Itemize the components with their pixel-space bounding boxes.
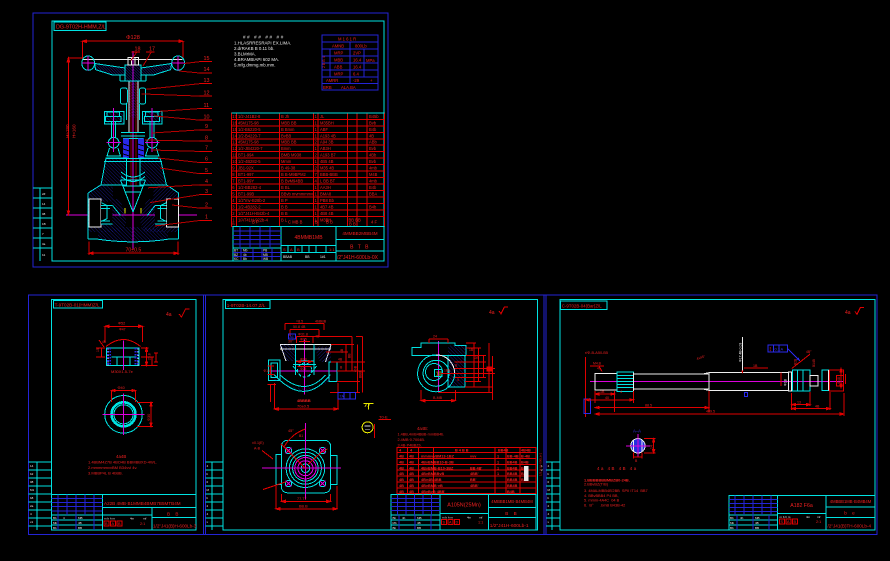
svg-text:B T B: B T B (350, 245, 370, 251)
svg-text:4MMBB2MBB4M: 4MMBB2MBB4M (342, 231, 377, 236)
svg-text:1B: 1B (469, 348, 474, 352)
svg-text:1:1: 1:1 (478, 521, 483, 525)
svg-text:1:1: 1:1 (329, 247, 335, 252)
svg-text:4B: 4B (755, 521, 759, 525)
svg-text:Φ40: Φ40 (118, 386, 125, 390)
svg-text:ABB: ABB (334, 65, 343, 70)
svg-text:4a: 4a (166, 312, 172, 318)
svg-text:1/2"J41(B)H-600Lb-3: 1/2"J41(B)H-600Lb-3 (153, 524, 197, 529)
svg-text:2: 2 (205, 202, 208, 208)
svg-text:2:1: 2:1 (816, 520, 821, 524)
svg-text:╏: ╏ (769, 347, 771, 352)
svg-text:B: B (315, 220, 318, 225)
svg-text:A1: A1 (290, 335, 294, 339)
svg-text:WB: WB (263, 257, 268, 261)
svg-text:4BBBB: 4BBBB (297, 398, 311, 403)
svg-text:mf: mf (143, 517, 146, 521)
svg-text:4: 4 (205, 179, 208, 185)
svg-text:b2: b2 (30, 472, 34, 476)
svg-text:3.BLMrMA.: 3.BLMrMA. (234, 52, 256, 57)
svg-text:A–A: A–A (633, 429, 641, 434)
svg-text:Mb: Mb (53, 521, 57, 525)
svg-text:r/Φ-B-A50-B5: r/Φ-B-A50-B5 (585, 351, 608, 355)
svg-text:4a 4B 4B 4a: 4a 4B 4B 4a (597, 466, 638, 471)
svg-text:4B°: 4B° (806, 350, 812, 354)
svg-text:M30X1.5-7e: M30X1.5-7e (111, 369, 134, 374)
svg-text:4m: 4m (467, 516, 472, 520)
svg-text:A22B 4MB·B1MMB4BMB7B5MTB4M: A22B 4MB·B1MMB4BMB7B5MTB4M (104, 501, 181, 506)
svg-text:77.77: 77.77 (297, 497, 307, 501)
svg-text:Φ31.8: Φ31.8 (298, 332, 308, 336)
svg-text:6: 6 (205, 157, 208, 163)
svg-text:800Lb: 800Lb (355, 44, 367, 49)
svg-text:mf: mf (817, 515, 820, 519)
svg-text:KC: KC (234, 257, 239, 261)
svg-text:4h: 4h (740, 516, 744, 520)
svg-text:14: 14 (204, 67, 210, 73)
svg-text:C-9T02B-04(Bar)Z/L: C-9T02B-04(Bar)Z/L (562, 304, 603, 309)
svg-text:Φ1B: Φ1B (784, 378, 788, 386)
svg-text:AMRR: AMRR (326, 78, 338, 83)
svg-text:Φ30: Φ30 (147, 414, 151, 421)
svg-text:H≈160: H≈160 (72, 124, 77, 138)
svg-text:1.4BBM4Z7B 4BO4B BBMBBXD-4WL.: 1.4BBM4Z7B 4BO4B BBMBBXD-4WL. (88, 460, 157, 465)
svg-text:30°: 30° (288, 339, 294, 343)
svg-text:T-9T02B-01(HMM)Z/L: T-9T02B-01(HMM)Z/L (55, 303, 100, 308)
svg-text:4a4B:: 4a4B: (417, 426, 428, 431)
svg-text:4: 4 (457, 378, 459, 382)
svg-text:Φ47: Φ47 (119, 327, 126, 331)
svg-text:Φ48: Φ48 (837, 377, 841, 384)
svg-text:2.BBvBZ(T/B): 2.BBvBZ(T/B) (584, 482, 609, 487)
svg-text:4bBBB: 4bBBB (315, 319, 327, 323)
svg-text:BB: BB (417, 526, 421, 530)
svg-text:3: 3 (205, 189, 208, 195)
svg-text:=8.5: =8.5 (296, 319, 303, 323)
svg-text:1#1: 1#1 (320, 255, 326, 259)
svg-text:24: 24 (433, 334, 437, 338)
svg-text:13: 13 (204, 78, 210, 84)
svg-text:Mb: Mb (393, 521, 397, 525)
svg-text:5: 5 (205, 168, 208, 174)
svg-text:## ## ## ##: ## ## ## ## (243, 35, 285, 40)
svg-text:50.8 4B: 50.8 4B (293, 325, 306, 329)
svg-text:1/2"J41H-600Lb-1: 1/2"J41H-600Lb-1 (490, 523, 529, 529)
svg-text:Bb: Bb (730, 526, 734, 530)
svg-text:41/2"mv-B28b-2B P1PB8 Bb: 41/2"mv-B28b-2B P1PB8 Bb (232, 198, 334, 203)
svg-text:2VP: 2VP (353, 51, 361, 56)
svg-text:b1: b1 (42, 253, 46, 257)
svg-text:4B: 4B (78, 521, 82, 525)
svg-text:BBAB: BBAB (283, 255, 293, 259)
svg-text:1.4BB,4mB4BBB·mmBB4b.: 1.4BB,4mB4BBB·mmBB4b. (398, 433, 445, 437)
svg-text:D: D (456, 521, 459, 525)
svg-text:40: 40 (605, 396, 609, 400)
svg-text:Φ128: Φ128 (126, 35, 140, 41)
svg-text:2a: 2a (30, 504, 34, 508)
svg-text:B2B: B2B (794, 359, 798, 365)
svg-text:2.mmmmmvvBM B34vvl 4v.: 2.mmmmmvvBM B34vvl 4v. (88, 465, 137, 470)
svg-text:b e: b e (844, 511, 856, 516)
svg-text:2B: 2B (475, 356, 480, 360)
svg-text:Φ52: Φ52 (118, 322, 125, 326)
svg-text:13: 13 (797, 401, 801, 405)
svg-text:Bb: Bb (53, 516, 57, 520)
svg-text:7A: 7A (340, 395, 345, 399)
svg-text:DG-9T02H-HMM,Z/L: DG-9T02H-HMM,Z/L (56, 25, 106, 31)
svg-text:MBB: MBB (334, 58, 343, 63)
svg-text:3a: 3a (42, 242, 46, 246)
svg-text:12: 12 (204, 90, 210, 96)
svg-text:T0·E: T0·E (379, 415, 388, 420)
svg-text:45°: 45° (288, 429, 294, 433)
svg-text:15: 15 (96, 348, 100, 352)
svg-text:M1: M1 (30, 488, 34, 492)
svg-text:Bb: Bb (393, 516, 397, 520)
svg-text:Bb: Bb (393, 526, 397, 530)
svg-text:BB: BB (78, 526, 82, 530)
svg-text:BB.B: BB.B (299, 505, 308, 509)
svg-text:15: 15 (204, 56, 210, 62)
svg-text:14: 14 (42, 202, 46, 206)
svg-text:B F: B F (252, 220, 259, 225)
svg-text:BB: BB (755, 526, 759, 530)
svg-text:MB: MB (755, 516, 760, 520)
svg-text:BBB: BBB (359, 370, 363, 378)
svg-text:1BB: 1BB (444, 369, 451, 373)
svg-text:m b h m: m b h m (780, 515, 791, 519)
svg-text:M 1 6 1 R: M 1 6 1 R (338, 37, 356, 42)
svg-text:B1: B1 (299, 434, 303, 438)
svg-text:9: 9 (205, 124, 208, 130)
svg-text:1: 1 (205, 215, 208, 221)
svg-text:10: 10 (204, 114, 210, 120)
svg-text:6. B° .bmB B43B-42: 6. B° .bmB B43B-42 (584, 503, 625, 508)
svg-text:MB: MB (78, 516, 83, 520)
svg-text:C MB B: C MB B (288, 220, 303, 225)
svg-text:4B: 4B (340, 348, 344, 353)
svg-text:MB: MB (417, 516, 422, 520)
svg-text:1.HLASRRESRAPI EX.LIMA.: 1.HLASRRESRAPI EX.LIMA. (234, 41, 291, 46)
svg-text:2#: 2# (42, 192, 46, 196)
svg-text:4a: 4a (845, 310, 851, 316)
svg-text:B: B (297, 247, 300, 252)
svg-text:BB: BB (305, 255, 310, 259)
svg-text:88.5: 88.5 (645, 403, 652, 407)
svg-text:16.4: 16.4 (353, 58, 362, 63)
svg-text:S: S (283, 247, 286, 252)
svg-text:10: 10 (436, 372, 442, 378)
svg-text:1B: 1B (42, 222, 46, 226)
svg-text:Bb: Bb (730, 516, 734, 520)
svg-text:489.5: 489.5 (706, 410, 715, 414)
svg-text:A182 F6a: A182 F6a (790, 503, 813, 509)
svg-text:Φ2B: Φ2B (300, 357, 307, 361)
svg-text:-29: -29 (353, 78, 360, 83)
svg-text:m b h m: m b h m (442, 516, 453, 520)
svg-text:14: 14 (650, 445, 654, 449)
svg-text:x1: x1 (30, 520, 34, 524)
svg-text:1B: 1B (600, 390, 605, 394)
svg-text:±0.1(E): ±0.1(E) (252, 441, 264, 445)
svg-text:4B: 4B (815, 404, 820, 408)
svg-text:4m: 4m (806, 515, 811, 519)
svg-text:08: 08 (42, 212, 46, 216)
svg-text:23.8: 23.8 (148, 353, 152, 360)
svg-text:A105N(25Mn): A105N(25Mn) (447, 503, 481, 509)
svg-text:B14B: B14B (812, 359, 816, 367)
svg-text:4h: 4h (402, 516, 406, 520)
svg-text:MRP: MRP (334, 72, 344, 77)
svg-text:Φ25: Φ25 (300, 367, 306, 371)
svg-text:4bB: 4bB (354, 365, 358, 372)
svg-text:3.4B·P4BBZb.: 3.4B·P4BBZb. (398, 444, 422, 448)
svg-text:B B: B B (326, 220, 333, 225)
svg-text:2.drRAKB B 0.11 bb.: 2.drRAKB B 0.11 bb. (234, 46, 274, 51)
svg-text:B B: B B (167, 512, 180, 517)
svg-text:M4.B: M4.B (593, 362, 602, 366)
svg-text:2:1: 2:1 (140, 522, 145, 526)
svg-text:2.4MB·0.7004B.: 2.4MB·0.7004B. (398, 438, 425, 442)
svg-text:Mb: Mb (730, 521, 734, 525)
svg-text:A-B: A-B (254, 447, 261, 451)
svg-text:7: 7 (205, 146, 208, 152)
svg-text:4BMMB1MB: 4BMMB1MB (294, 235, 323, 241)
svg-text:4: 4 (620, 390, 622, 394)
svg-text:70±0.5: 70±0.5 (297, 404, 310, 409)
svg-text:/2"J41H-600Lb-0X: /2"J41H-600Lb-0X (337, 255, 379, 261)
svg-text:70±0.5: 70±0.5 (125, 248, 141, 254)
svg-text:A: A (781, 347, 784, 352)
svg-text:1B: 1B (753, 364, 758, 368)
svg-text:5.mfg.dmmg.mb.mm.: 5.mfg.dmmg.mb.mm. (234, 63, 275, 68)
svg-text:Bb: Bb (243, 257, 247, 261)
svg-text:2 B B 4: 2 B B 4 (322, 56, 326, 68)
svg-text:4MBBB1MB·B4MB4M: 4MBBB1MB·B4MB4M (491, 499, 533, 504)
svg-text:H≈180: H≈180 (65, 124, 70, 138)
svg-text:MRP: MRP (334, 51, 344, 56)
svg-text:AMNB: AMNB (332, 44, 344, 49)
svg-text:/2"J41(B)TH-600Lb-4: /2"J41(B)TH-600Lb-4 (828, 523, 872, 528)
svg-text:ALA.BA: ALA.BA (341, 85, 356, 90)
svg-text:08: 08 (30, 480, 34, 484)
svg-text:4B: 4B (338, 358, 343, 362)
svg-text:6.4: 6.4 (353, 72, 359, 77)
svg-text:8: 8 (205, 135, 208, 141)
svg-text:1-9T02B-14.07,Z/L: 1-9T02B-14.07,Z/L (227, 303, 266, 308)
svg-text:4m: 4m (130, 517, 135, 521)
svg-text:B B: B B (505, 511, 518, 516)
svg-text:4a4B: 4a4B (116, 454, 126, 459)
svg-text:BB: BB (348, 353, 352, 358)
svg-text:Φ17.4B-0.03: Φ17.4B-0.03 (738, 343, 742, 362)
svg-text:14: 14 (30, 464, 34, 468)
svg-text:BRB: BRB (323, 85, 332, 90)
svg-text:4MBBB1MB·B4MB4M: 4MBBB1MB·B4MB4M (830, 499, 872, 504)
svg-text:m b h m: m b h m (104, 517, 115, 521)
svg-text:mf: mf (479, 516, 482, 520)
svg-text:B-MB: B-MB (433, 396, 443, 400)
svg-text:A: A (290, 247, 293, 252)
svg-text:Φ15: Φ15 (264, 369, 271, 373)
svg-text:4.BRAMBIAPI 602 MA.: 4.BRAMBIAPI 602 MA. (234, 57, 279, 62)
svg-text:B B: B B (349, 222, 356, 227)
svg-text:16.4: 16.4 (353, 65, 362, 70)
svg-text:3.MBBP4L B 4bBB.: 3.MBBP4L B 4bBB. (88, 471, 123, 476)
svg-text:11: 11 (204, 103, 210, 109)
svg-text:MPa: MPa (366, 58, 375, 63)
svg-text:4a: 4a (489, 310, 495, 316)
svg-text:Φ25: Φ25 (300, 337, 307, 341)
svg-text:Bb: Bb (53, 526, 57, 530)
svg-text:4B: 4B (102, 340, 106, 344)
svg-text:b8: b8 (30, 496, 34, 500)
svg-text:4 F: 4 F (371, 220, 377, 225)
svg-text:4B: 4B (417, 521, 421, 525)
